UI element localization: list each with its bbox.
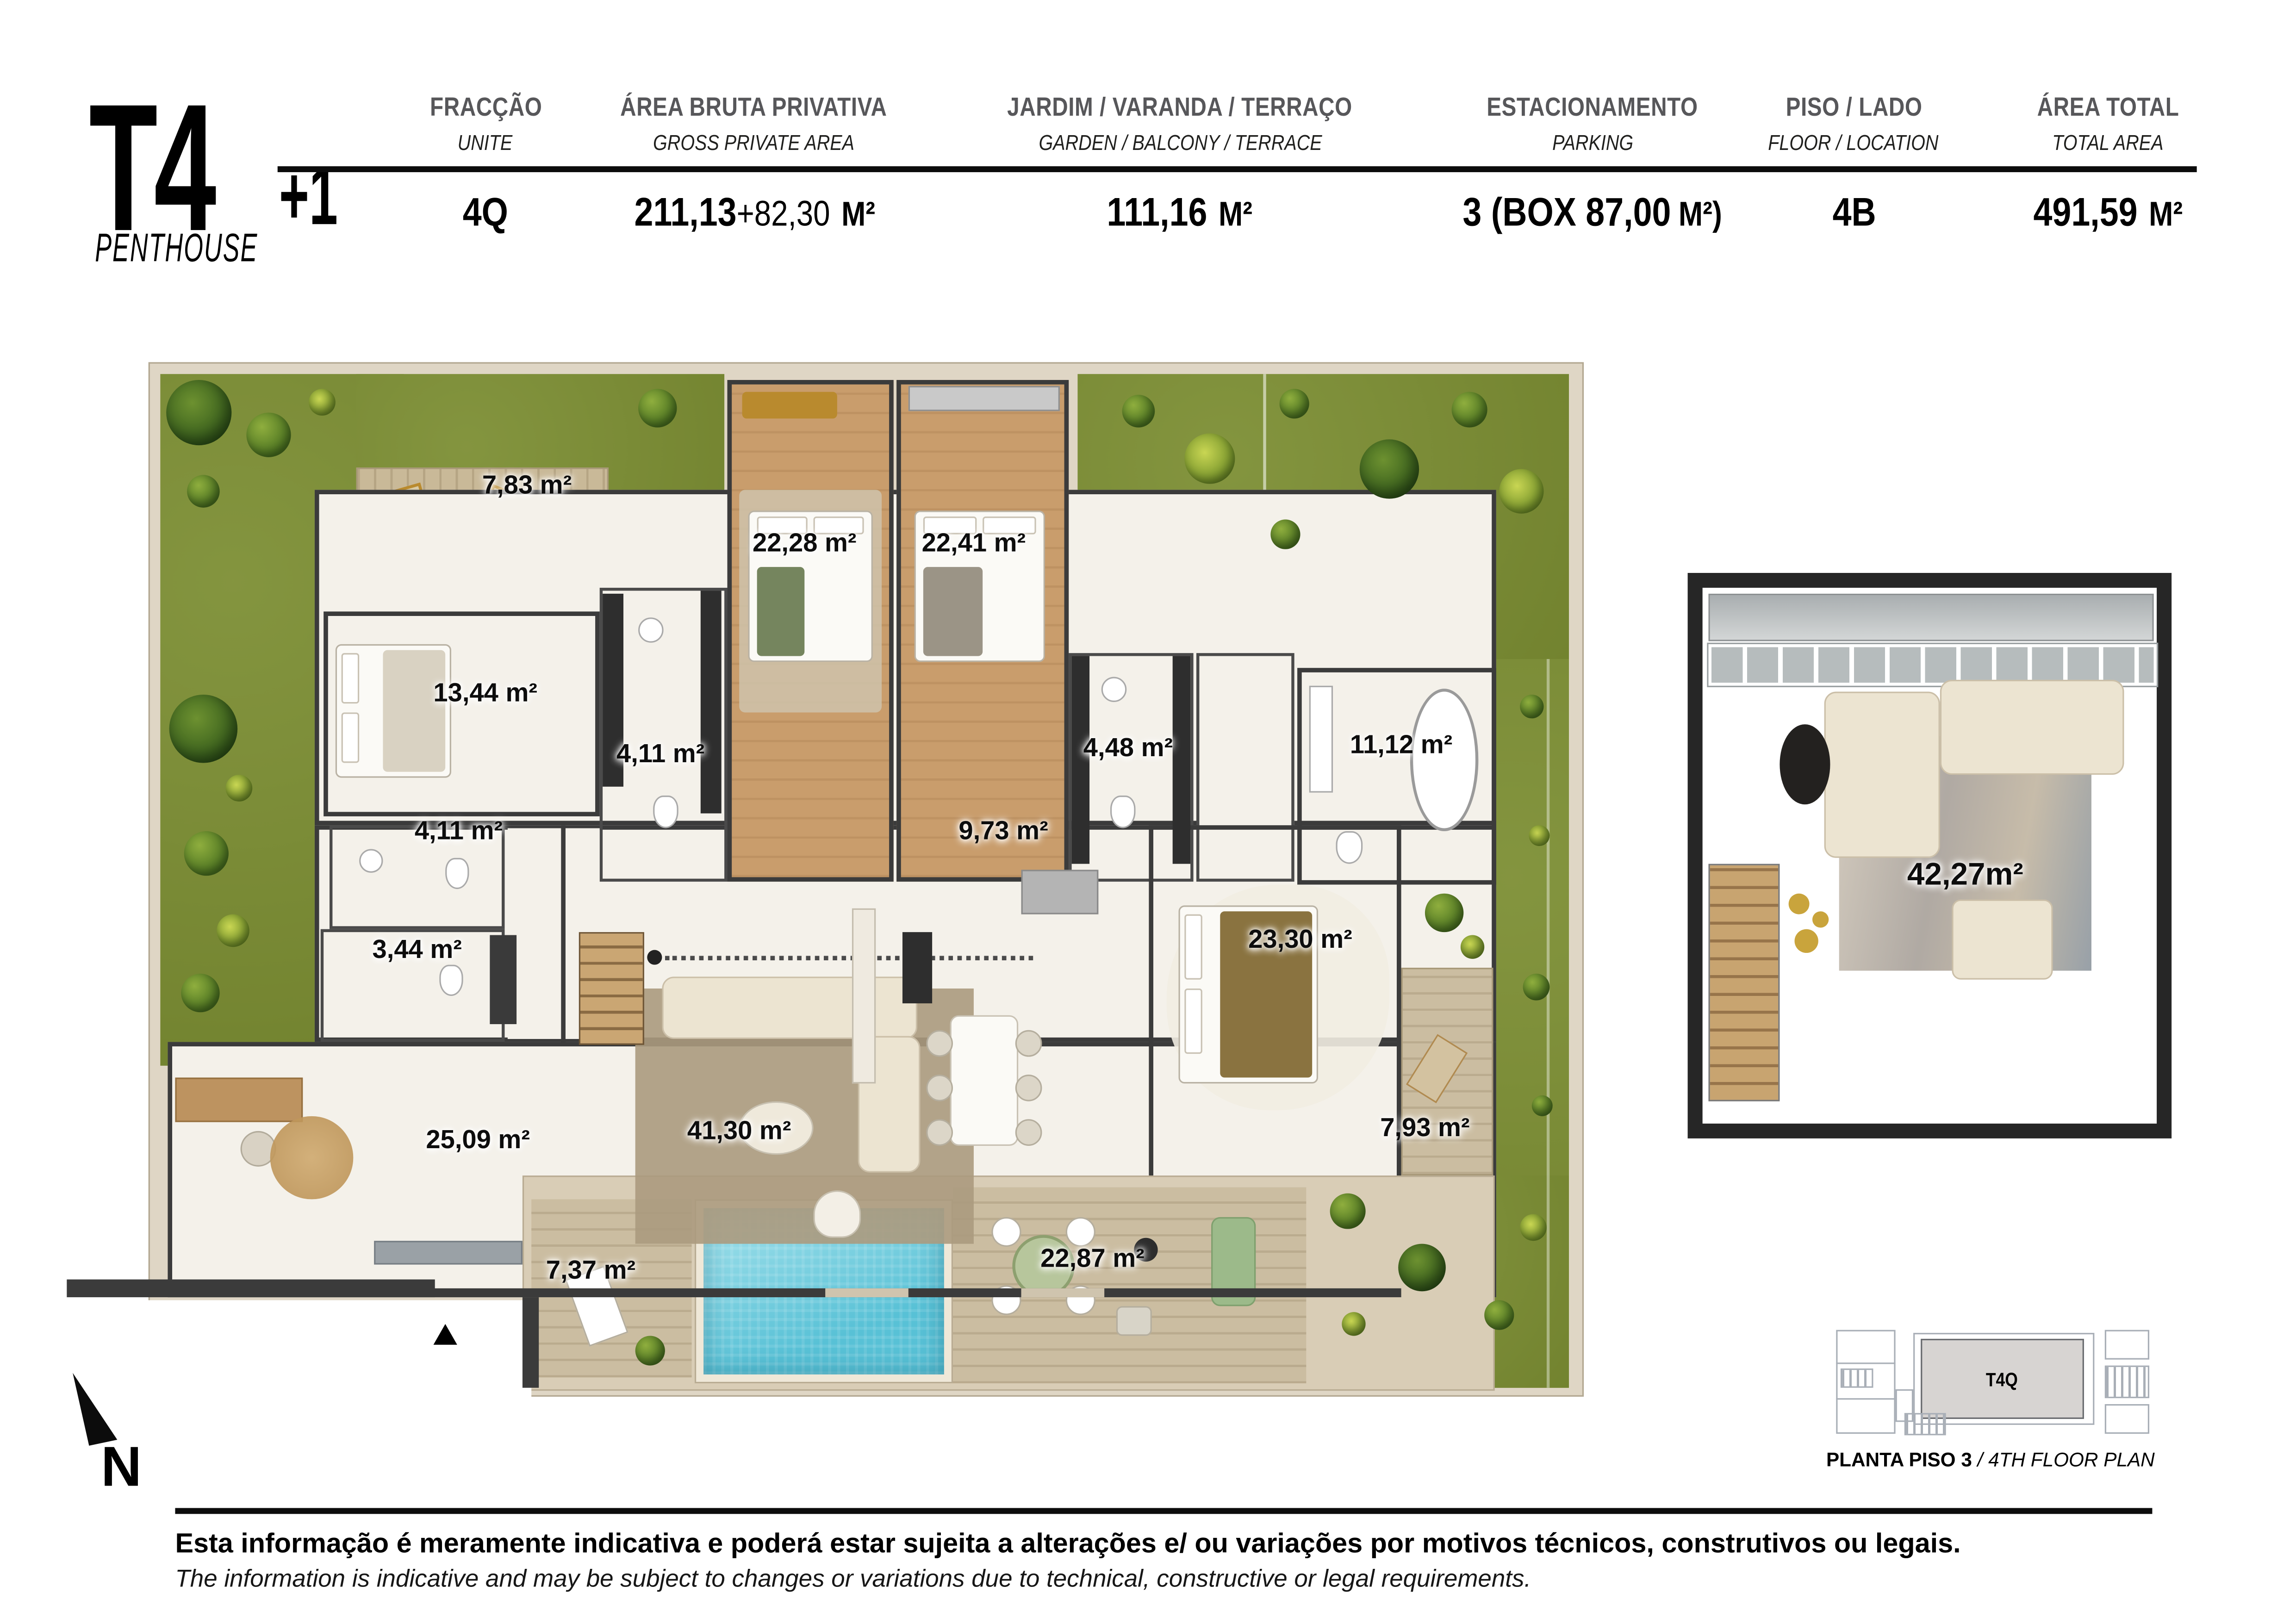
entrance-wall xyxy=(67,1280,435,1297)
col-estacionamento-pt: ESTACIONAMENTO xyxy=(1487,92,1698,123)
bush-icon xyxy=(1425,894,1463,932)
footer-disclaimer-pt: Esta informação é meramente indicativa e… xyxy=(175,1527,1960,1560)
upper-white-area xyxy=(1780,1036,2151,1118)
room-label-411a: 4,11 m² xyxy=(616,739,704,770)
blanket-icon xyxy=(757,567,805,656)
room-label-2241: 22,41 m² xyxy=(922,528,1026,559)
mini-unit-label: T4Q xyxy=(1986,1368,2018,1390)
header-rule xyxy=(278,166,2197,171)
value-jardim: 111,16M² xyxy=(972,190,1388,236)
mini-elevator xyxy=(1904,1413,1946,1435)
col-jardim: JARDIM / VARANDA / TERRAÇO GARDEN / BALC… xyxy=(972,92,1388,156)
room-label-4227: 42,27m² xyxy=(1907,858,2023,894)
room-label-2509: 25,09 m² xyxy=(426,1124,530,1155)
bush-icon xyxy=(1484,1300,1514,1330)
dining-table-icon xyxy=(950,1015,1019,1146)
col-piso-en: FLOOR / LOCATION xyxy=(1769,132,1939,155)
bush-icon xyxy=(1529,825,1549,846)
pouf-icon xyxy=(1116,1306,1152,1336)
shelf-icon xyxy=(374,1241,523,1264)
room-label-1112: 11,12 m² xyxy=(1350,729,1453,760)
garden-path-line xyxy=(1547,659,1549,1388)
col-area-bruta-pt: ÁREA BRUTA PRIVATIVA xyxy=(621,92,887,123)
col-area-bruta: ÁREA BRUTA PRIVATIVA GROSS PRIVATE AREA xyxy=(583,92,925,156)
room-label-793: 7,93 m² xyxy=(1380,1113,1469,1144)
room-label-973: 9,73 m² xyxy=(958,815,1048,846)
mini-location-plan: T4Q xyxy=(1823,1321,2157,1443)
porch-wall xyxy=(523,1297,539,1388)
col-piso: PISO / LADO FLOOR / LOCATION xyxy=(1720,92,1987,156)
dining-chair-icon xyxy=(926,1119,953,1146)
pouf-icon xyxy=(1952,900,2053,980)
screen-dotted-line xyxy=(665,956,1033,960)
kitchen-island-icon xyxy=(902,932,932,1003)
col-area-total-en: TOTAL AREA xyxy=(2052,132,2163,155)
closet-icon xyxy=(908,386,1060,411)
sink-icon xyxy=(1101,677,1127,702)
dining-chair-icon xyxy=(1015,1030,1042,1057)
wall-office-divider xyxy=(561,825,566,1045)
bush-icon xyxy=(1342,1312,1365,1336)
mini-left-line xyxy=(1836,1362,1895,1364)
bush-icon xyxy=(184,831,229,876)
bush-icon xyxy=(638,389,677,427)
entrance-notch xyxy=(143,1300,531,1399)
room-label-737: 7,37 m² xyxy=(546,1255,635,1286)
mini-caption-en: / 4TH FLOOR PLAN xyxy=(1972,1449,2155,1471)
bush-icon xyxy=(187,475,220,508)
room-label-2228: 22,28 m² xyxy=(753,528,857,559)
bush-icon xyxy=(1520,695,1543,718)
col-fraccao-pt: FRACÇÃO xyxy=(429,92,541,123)
room-label-411b: 4,11 m² xyxy=(415,815,503,846)
mini-right-stairs xyxy=(2105,1366,2149,1399)
gold-table-icon xyxy=(1812,911,1829,927)
bush-icon xyxy=(1499,469,1543,513)
bush-icon xyxy=(217,914,249,947)
toilet-icon xyxy=(445,858,469,889)
sink-icon xyxy=(359,849,383,873)
room-label-1344: 13,44 m² xyxy=(433,678,537,709)
pillow-icon xyxy=(342,712,359,763)
col-area-total: ÁREA TOTAL TOTAL AREA xyxy=(1974,92,2241,156)
mini-stairs xyxy=(1841,1368,1873,1388)
bush-icon xyxy=(225,775,252,802)
value-area-bruta: 211,13+82,30M² xyxy=(583,190,925,236)
toilet-icon xyxy=(1110,796,1136,828)
pillow-icon xyxy=(342,653,359,703)
wardrobe-icon xyxy=(701,591,722,813)
room-label-4130: 41,30 m² xyxy=(687,1115,791,1146)
bush-icon xyxy=(635,1336,665,1365)
col-jardim-en: GARDEN / BALCONY / TERRACE xyxy=(1039,132,1322,155)
sofa-icon xyxy=(662,976,917,1039)
bush-icon xyxy=(1523,974,1550,1001)
outdoor-chair-icon xyxy=(991,1217,1021,1247)
door-gap xyxy=(1021,1288,1105,1297)
armchair-icon xyxy=(814,1190,861,1238)
tree-icon xyxy=(166,380,231,445)
bush-icon xyxy=(1330,1194,1366,1229)
mini-unit-t4q: T4Q xyxy=(1921,1339,2084,1419)
room-label-344: 3,44 m² xyxy=(373,934,462,965)
bush-icon xyxy=(1532,1095,1553,1116)
bush-icon xyxy=(181,974,219,1012)
stairs-icon xyxy=(579,932,644,1045)
counter-icon xyxy=(852,908,876,1083)
sink-icon xyxy=(638,617,664,643)
room-label-783: 7,83 m² xyxy=(482,470,572,501)
sofa-icon xyxy=(1940,680,2124,775)
mini-right-room xyxy=(2105,1330,2149,1360)
bush-icon xyxy=(1461,935,1484,959)
col-fraccao: FRACÇÃO UNITE xyxy=(367,92,604,156)
mini-plan-caption: PLANTA PISO 3 / 4TH FLOOR PLAN xyxy=(1823,1449,2158,1471)
room-label-2330: 23,30 m² xyxy=(1248,924,1352,955)
tree-icon xyxy=(169,695,238,763)
value-fraccao: 4Q xyxy=(367,190,604,236)
dining-chair-icon xyxy=(1015,1075,1042,1101)
col-estacionamento-en: PARKING xyxy=(1552,132,1633,155)
tree-icon xyxy=(1398,1244,1446,1292)
pillow-icon xyxy=(1184,914,1202,980)
bench-icon xyxy=(742,392,837,419)
round-rug-icon xyxy=(270,1116,354,1200)
pillow-icon xyxy=(1184,989,1202,1054)
door-gap xyxy=(825,1288,908,1297)
kitchen-cabinet-icon xyxy=(1021,870,1099,914)
gold-table-icon xyxy=(1795,929,1818,953)
entrance-arrow-icon xyxy=(434,1324,457,1345)
bush-icon xyxy=(1520,1214,1547,1241)
bush-icon xyxy=(246,413,291,457)
col-jardim-pt: JARDIM / VARANDA / TERRAÇO xyxy=(1008,92,1353,123)
coffee-table-icon xyxy=(1780,724,1830,804)
toilet-icon xyxy=(439,965,463,996)
upper-floor-plan xyxy=(1688,573,2172,1138)
blanket-icon xyxy=(923,567,983,656)
footer-disclaimer-en: The information is indicative and may be… xyxy=(175,1566,1531,1594)
north-label: N xyxy=(101,1437,142,1501)
outdoor-chair-icon xyxy=(1066,1217,1095,1247)
tree-icon xyxy=(1360,439,1419,498)
sofa-icon xyxy=(1824,692,1940,858)
bush-icon xyxy=(1452,392,1487,428)
room-label-2287: 22,87 m² xyxy=(1040,1243,1145,1274)
value-area-total: 491,59M² xyxy=(1974,190,2241,236)
dining-chair-icon xyxy=(1015,1119,1042,1146)
toilet-icon xyxy=(653,796,678,828)
toilet-icon xyxy=(1336,831,1363,864)
mini-right-room xyxy=(2105,1404,2149,1434)
blanket-icon xyxy=(383,650,445,772)
desk-icon xyxy=(175,1077,303,1122)
wardrobe-icon xyxy=(1173,656,1190,864)
bush-icon xyxy=(1184,434,1235,484)
col-fraccao-en: UNITE xyxy=(458,132,513,155)
screen-dot xyxy=(647,950,662,965)
bush-icon xyxy=(309,389,336,416)
bush-icon xyxy=(1280,389,1309,418)
mini-left-line xyxy=(1836,1398,1895,1399)
footer-rule xyxy=(175,1508,2152,1513)
stairs-icon xyxy=(1708,864,1780,1101)
col-area-total-pt: ÁREA TOTAL xyxy=(2037,92,2179,123)
room-label-448: 4,48 m² xyxy=(1083,733,1173,764)
bush-icon xyxy=(1122,395,1155,428)
value-piso: 4B xyxy=(1720,190,1987,236)
bush-icon xyxy=(1270,520,1300,549)
gold-table-icon xyxy=(1789,894,1810,914)
floor-plan-sheet: T4 +1 PENTHOUSE FRACÇÃO UNITE ÁREA BRUTA… xyxy=(0,0,2296,1622)
col-piso-pt: PISO / LADO xyxy=(1786,92,1922,123)
mini-caption-pt: PLANTA PISO 3 xyxy=(1826,1449,1972,1471)
appliance-icon xyxy=(490,935,516,1024)
col-area-bruta-en: GROSS PRIVATE AREA xyxy=(653,132,855,155)
terrace-glass-band xyxy=(1708,594,2153,641)
dining-chair-icon xyxy=(926,1075,953,1101)
vanity-icon xyxy=(1309,686,1333,793)
logo-subtitle: PENTHOUSE xyxy=(95,225,258,271)
dining-chair-icon xyxy=(926,1030,953,1057)
logo: T4 +1 PENTHOUSE xyxy=(86,77,413,300)
